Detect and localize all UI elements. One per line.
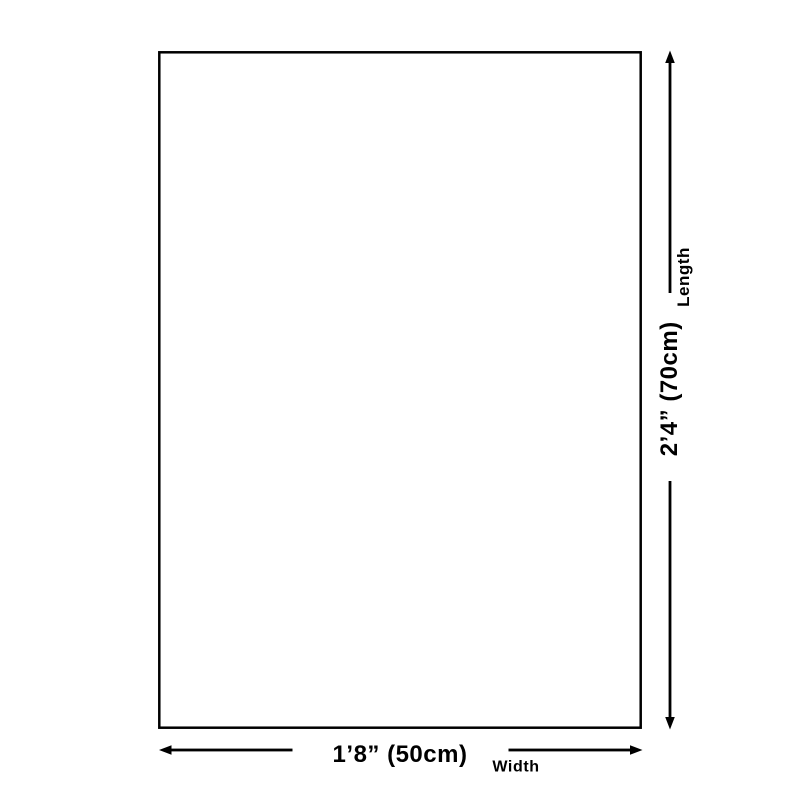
svg-text:1’8” (50cm): 1’8” (50cm): [333, 741, 468, 768]
svg-text:Length: Length: [674, 247, 693, 307]
svg-text:Width: Width: [492, 759, 539, 776]
svg-text:2’4” (70cm): 2’4” (70cm): [656, 321, 683, 456]
